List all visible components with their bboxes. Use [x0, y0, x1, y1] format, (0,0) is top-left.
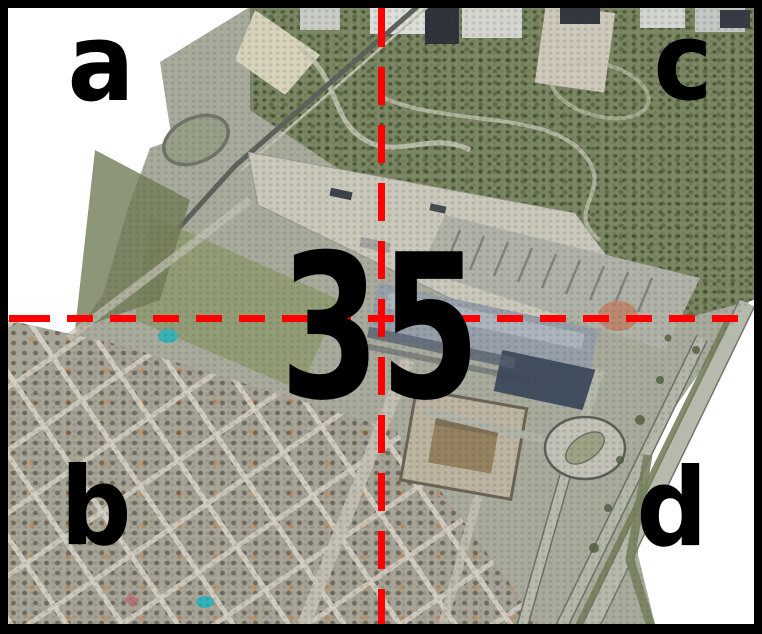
quadrant-label-c: c: [654, 9, 713, 117]
map-sheet-figure: a c b d 35: [0, 0, 762, 634]
figure-canvas: a c b d 35: [8, 8, 754, 624]
quadrant-label-b: b: [60, 454, 131, 562]
road-loop: [156, 106, 236, 175]
pink-roof-building: [124, 593, 139, 608]
sheet-number-label: 35: [280, 229, 480, 429]
quadrant-label-a: a: [67, 10, 134, 118]
swimming-pool: [196, 596, 214, 608]
quadrant-label-d: d: [636, 455, 707, 563]
swimming-pool: [158, 329, 178, 343]
